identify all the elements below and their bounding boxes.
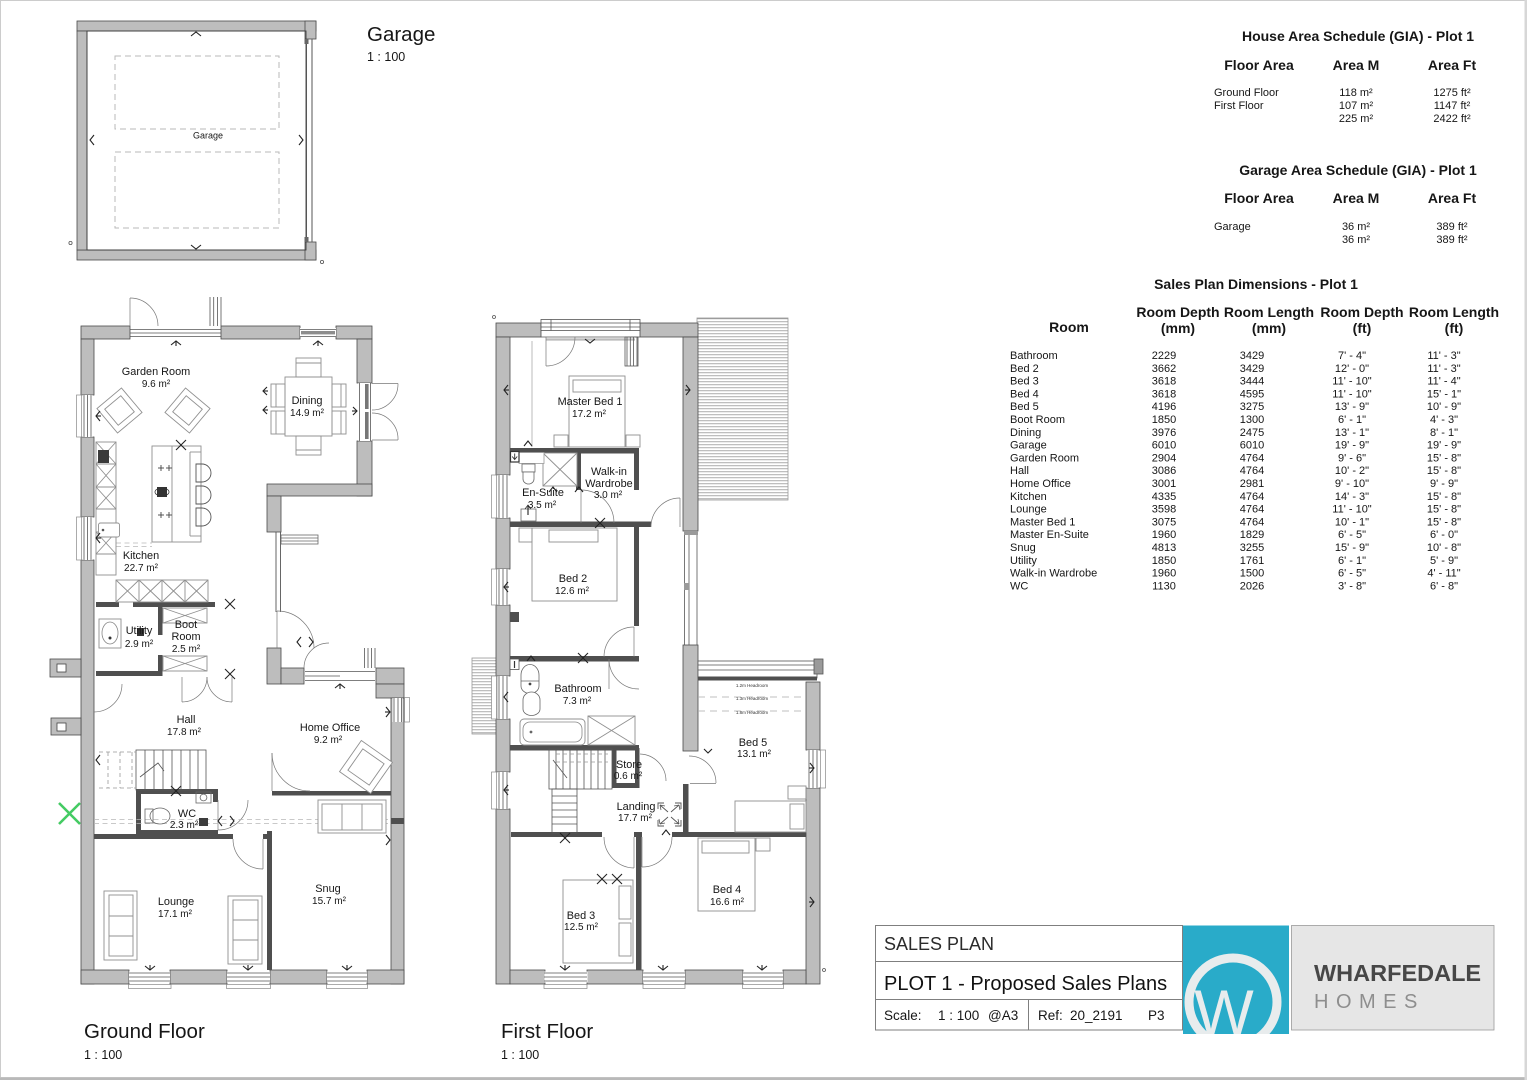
svg-text:12.5 m²: 12.5 m² (564, 922, 599, 933)
svg-text:1 : 100: 1 : 100 (501, 1048, 539, 1062)
svg-text:1275 ft²: 1275 ft² (1433, 87, 1471, 99)
svg-text:Bed 5: Bed 5 (739, 737, 767, 749)
svg-text:1 : 100: 1 : 100 (367, 50, 405, 64)
svg-text:4595: 4595 (1240, 388, 1264, 400)
svg-text:11' - 10": 11' - 10" (1332, 388, 1372, 400)
svg-text:Landing: Landing (617, 801, 656, 813)
svg-text:Area Ft: Area Ft (1428, 57, 1477, 73)
svg-text:Garage: Garage (1010, 440, 1047, 452)
svg-text:11' - 10": 11' - 10" (1332, 504, 1372, 516)
svg-text:Area M: Area M (1333, 57, 1380, 73)
svg-text:En-Suite: En-Suite (522, 487, 564, 499)
svg-text:4764: 4764 (1240, 491, 1264, 503)
svg-text:9' - 6": 9' - 6" (1338, 452, 1366, 464)
svg-text:Boot Room: Boot Room (1010, 414, 1065, 426)
svg-text:14.9 m²: 14.9 m² (290, 408, 325, 419)
svg-text:Bed 4: Bed 4 (713, 884, 741, 896)
svg-text:15.7 m²: 15.7 m² (312, 896, 347, 907)
svg-text:4764: 4764 (1240, 465, 1264, 477)
svg-text:3086: 3086 (1152, 465, 1176, 477)
svg-text:Room Length: Room Length (1224, 304, 1314, 320)
svg-text:4813: 4813 (1152, 542, 1176, 554)
svg-text:2422 ft²: 2422 ft² (1433, 113, 1471, 125)
svg-text:House Area Schedule (GIA) - Pl: House Area Schedule (GIA) - Plot 1 (1242, 28, 1474, 44)
svg-text:4764: 4764 (1240, 516, 1264, 528)
svg-text:3.5 m²: 3.5 m² (528, 500, 557, 511)
svg-text:Sales Plan Dimensions - Plot: Sales Plan Dimensions - Plot 1 (1154, 276, 1358, 292)
svg-text:13.1 m²: 13.1 m² (737, 749, 772, 760)
svg-text:1.8m Headroom: 1.8m Headroom (736, 710, 769, 715)
svg-text:SALES PLAN: SALES PLAN (884, 934, 994, 954)
svg-text:(mm): (mm) (1252, 320, 1286, 336)
svg-text:Ground Floor: Ground Floor (84, 1020, 205, 1043)
svg-text:6' - 1": 6' - 1" (1338, 414, 1366, 426)
svg-text:3662: 3662 (1152, 363, 1176, 375)
svg-text:PLOT 1 - Proposed Sales Plans: PLOT 1 - Proposed Sales Plans (884, 973, 1167, 995)
svg-text:13' - 9": 13' - 9" (1335, 401, 1369, 413)
svg-text:Garage: Garage (193, 131, 223, 141)
svg-text:10' - 9": 10' - 9" (1427, 401, 1461, 413)
svg-text:107 m²: 107 m² (1339, 100, 1374, 112)
svg-text:4335: 4335 (1152, 491, 1176, 503)
svg-text:3275: 3275 (1240, 401, 1264, 413)
svg-text:6' - 5": 6' - 5" (1338, 568, 1366, 580)
svg-text:20_2191: 20_2191 (1070, 1008, 1123, 1023)
svg-text:Garage Area Schedule (GIA) - P: Garage Area Schedule (GIA) - Plot 1 (1239, 162, 1477, 178)
svg-text:2026: 2026 (1240, 580, 1264, 592)
svg-text:Boot: Boot (175, 619, 197, 631)
svg-text:17.8 m²: 17.8 m² (167, 727, 202, 738)
svg-text:11' - 10": 11' - 10" (1332, 376, 1372, 388)
svg-text:3429: 3429 (1240, 350, 1264, 362)
svg-text:3255: 3255 (1240, 542, 1264, 554)
svg-text:Bed 5: Bed 5 (1010, 401, 1039, 413)
svg-text:1147 ft²: 1147 ft² (1434, 100, 1471, 112)
svg-text:Hall: Hall (177, 714, 196, 726)
svg-text:Room: Room (1049, 319, 1089, 335)
svg-text:Room Depth: Room Depth (1136, 304, 1219, 320)
svg-text:Bed 3: Bed 3 (567, 910, 595, 922)
svg-text:Bed 4: Bed 4 (1010, 388, 1039, 400)
svg-text:Ref:: Ref: (1038, 1008, 1063, 1023)
svg-text:First Floor: First Floor (501, 1020, 593, 1043)
svg-text:6' - 5": 6' - 5" (1338, 529, 1366, 541)
svg-text:11' - 4": 11' - 4" (1427, 376, 1460, 388)
svg-text:389 ft²: 389 ft² (1436, 234, 1468, 246)
svg-text:15' - 8": 15' - 8" (1427, 465, 1461, 477)
svg-text:19' - 9": 19' - 9" (1335, 440, 1369, 452)
svg-text:1960: 1960 (1152, 568, 1176, 580)
svg-text:3001: 3001 (1152, 478, 1176, 490)
svg-text:(ft): (ft) (1445, 320, 1464, 336)
svg-text:Kitchen: Kitchen (123, 550, 159, 562)
svg-text:Hall: Hall (1010, 465, 1029, 477)
svg-text:11' - 3": 11' - 3" (1427, 350, 1460, 362)
svg-text:Master Bed 1: Master Bed 1 (558, 396, 623, 408)
svg-text:15' - 8": 15' - 8" (1427, 504, 1461, 516)
svg-text:3' - 8": 3' - 8" (1338, 580, 1366, 592)
svg-text:Snug: Snug (1010, 542, 1036, 554)
svg-text:3618: 3618 (1152, 388, 1176, 400)
svg-text:Lounge: Lounge (158, 896, 194, 908)
svg-text:Floor Area: Floor Area (1224, 57, 1294, 73)
svg-text:3976: 3976 (1152, 427, 1176, 439)
svg-text:Bed 2: Bed 2 (559, 573, 587, 585)
svg-text:6' - 0": 6' - 0" (1430, 529, 1458, 541)
svg-text:16.6 m²: 16.6 m² (710, 897, 745, 908)
svg-text:Garden Room: Garden Room (1010, 452, 1079, 464)
svg-text:Bed 2: Bed 2 (1010, 363, 1039, 375)
svg-text:Ground Floor: Ground Floor (1214, 87, 1279, 99)
svg-text:15' - 8": 15' - 8" (1427, 452, 1461, 464)
svg-text:P3: P3 (1148, 1008, 1165, 1023)
svg-text:5' - 9": 5' - 9" (1430, 555, 1458, 567)
svg-text:0.6 m²: 0.6 m² (614, 771, 643, 782)
svg-text:4' - 11": 4' - 11" (1427, 568, 1460, 580)
svg-text:Room Length: Room Length (1409, 304, 1499, 320)
svg-text:2475: 2475 (1240, 427, 1264, 439)
svg-text:Utility: Utility (126, 625, 153, 637)
svg-text:14' - 3": 14' - 3" (1335, 491, 1369, 503)
svg-text:9' - 10": 9' - 10" (1335, 478, 1369, 490)
svg-text:13' - 1": 13' - 1" (1335, 427, 1369, 439)
svg-text:Bed 3: Bed 3 (1010, 376, 1039, 388)
svg-text:6010: 6010 (1152, 440, 1176, 452)
svg-text:36 m²: 36 m² (1342, 234, 1370, 246)
svg-text:WC: WC (178, 808, 196, 820)
svg-text:3618: 3618 (1152, 376, 1176, 388)
svg-text:Kitchen: Kitchen (1010, 491, 1047, 503)
svg-text:Walk-in Wardrobe: Walk-in Wardrobe (1010, 568, 1097, 580)
svg-text:225 m²: 225 m² (1339, 113, 1374, 125)
svg-text:4196: 4196 (1152, 401, 1176, 413)
svg-text:17.2 m²: 17.2 m² (572, 409, 607, 420)
svg-text:3075: 3075 (1152, 516, 1176, 528)
svg-text:Store: Store (616, 759, 642, 771)
svg-text:17.1 m²: 17.1 m² (158, 909, 193, 920)
svg-text:Utility: Utility (1010, 555, 1037, 567)
svg-text:2981: 2981 (1240, 478, 1264, 490)
svg-text:HOMES: HOMES (1314, 991, 1425, 1013)
svg-text:12.6 m²: 12.6 m² (555, 586, 590, 597)
svg-text:19' - 9": 19' - 9" (1427, 440, 1461, 452)
svg-text:2229: 2229 (1152, 350, 1176, 362)
svg-text:Home Office: Home Office (300, 722, 360, 734)
svg-text:Room: Room (171, 631, 200, 643)
svg-text:389 ft²: 389 ft² (1436, 221, 1468, 233)
svg-text:6' - 1": 6' - 1" (1338, 555, 1366, 567)
svg-text:1130: 1130 (1152, 580, 1176, 592)
svg-text:Garage: Garage (1214, 221, 1251, 233)
svg-text:(mm): (mm) (1161, 320, 1195, 336)
svg-text:1850: 1850 (1152, 414, 1176, 426)
svg-text:6' - 8": 6' - 8" (1430, 580, 1458, 592)
svg-text:Dining: Dining (292, 395, 323, 407)
svg-text:2.9 m²: 2.9 m² (125, 639, 154, 650)
svg-text:8' - 1": 8' - 1" (1430, 427, 1458, 439)
svg-text:WHARFEDALE: WHARFEDALE (1314, 960, 1481, 986)
svg-text:2.5 m²: 2.5 m² (172, 644, 201, 655)
svg-text:1.3m Headroom: 1.3m Headroom (736, 696, 769, 701)
svg-text:10' - 1": 10' - 1" (1335, 516, 1369, 528)
svg-text:Dining: Dining (1010, 427, 1041, 439)
svg-text:Bathroom: Bathroom (554, 683, 601, 695)
svg-text:1761: 1761 (1240, 555, 1264, 567)
svg-text:4' - 3": 4' - 3" (1430, 414, 1458, 426)
svg-text:Garage: Garage (367, 23, 435, 46)
svg-text:2.3 m²: 2.3 m² (170, 820, 199, 831)
svg-text:1.2m Headroom: 1.2m Headroom (736, 683, 769, 688)
svg-text:9' - 9": 9' - 9" (1430, 478, 1458, 490)
svg-text:10' - 2": 10' - 2" (1335, 465, 1369, 477)
svg-text:1500: 1500 (1240, 568, 1264, 580)
svg-text:Master Bed 1: Master Bed 1 (1010, 516, 1075, 528)
svg-text:@A3: @A3 (988, 1008, 1018, 1023)
svg-text:Floor Area: Floor Area (1224, 190, 1294, 206)
svg-text:1850: 1850 (1152, 555, 1176, 567)
svg-text:WC: WC (1010, 580, 1028, 592)
svg-text:12' - 0": 12' - 0" (1335, 363, 1369, 375)
svg-text:Lounge: Lounge (1010, 504, 1047, 516)
svg-text:Bathroom: Bathroom (1010, 350, 1058, 362)
svg-text:Room Depth: Room Depth (1320, 304, 1403, 320)
svg-text:9.6 m²: 9.6 m² (142, 379, 171, 390)
svg-text:Master En-Suite: Master En-Suite (1010, 529, 1089, 541)
svg-text:2904: 2904 (1152, 452, 1176, 464)
svg-text:(ft): (ft) (1353, 320, 1372, 336)
svg-text:1 : 100: 1 : 100 (84, 1048, 122, 1062)
svg-text:First Floor: First Floor (1214, 100, 1264, 112)
svg-text:11' - 3": 11' - 3" (1427, 363, 1460, 375)
svg-text:22.7 m²: 22.7 m² (124, 563, 159, 574)
svg-text:1960: 1960 (1152, 529, 1176, 541)
svg-text:6010: 6010 (1240, 440, 1264, 452)
svg-text:Home Office: Home Office (1010, 478, 1071, 490)
svg-text:3429: 3429 (1240, 363, 1264, 375)
svg-text:1829: 1829 (1240, 529, 1264, 541)
svg-text:Walk-in: Walk-in (591, 466, 627, 478)
svg-text:4764: 4764 (1240, 452, 1264, 464)
svg-text:7.3 m²: 7.3 m² (563, 696, 592, 707)
svg-text:Snug: Snug (315, 883, 340, 895)
svg-text:9.2 m²: 9.2 m² (314, 735, 343, 746)
svg-text:Area M: Area M (1333, 190, 1380, 206)
svg-text:15' - 8": 15' - 8" (1427, 516, 1461, 528)
svg-text:7' - 4": 7' - 4" (1338, 350, 1366, 362)
svg-text:17.7 m²: 17.7 m² (618, 813, 653, 824)
svg-text:Area Ft: Area Ft (1428, 190, 1477, 206)
svg-text:3598: 3598 (1152, 504, 1176, 516)
svg-text:3.0 m²: 3.0 m² (594, 490, 623, 501)
svg-text:3444: 3444 (1240, 376, 1264, 388)
svg-text:10' - 8": 10' - 8" (1427, 542, 1461, 554)
svg-text:Wardrobe: Wardrobe (585, 478, 632, 490)
svg-text:36 m²: 36 m² (1342, 221, 1370, 233)
svg-text:15' - 8": 15' - 8" (1427, 491, 1461, 503)
svg-text:1300: 1300 (1240, 414, 1264, 426)
svg-text:1 : 100: 1 : 100 (938, 1008, 979, 1023)
svg-text:15' - 9": 15' - 9" (1335, 542, 1369, 554)
svg-text:Scale:: Scale: (884, 1008, 922, 1023)
svg-text:Garden Room: Garden Room (122, 366, 190, 378)
svg-text:4764: 4764 (1240, 504, 1264, 516)
svg-text:118 m²: 118 m² (1339, 87, 1373, 99)
svg-text:15' - 1": 15' - 1" (1427, 388, 1461, 400)
